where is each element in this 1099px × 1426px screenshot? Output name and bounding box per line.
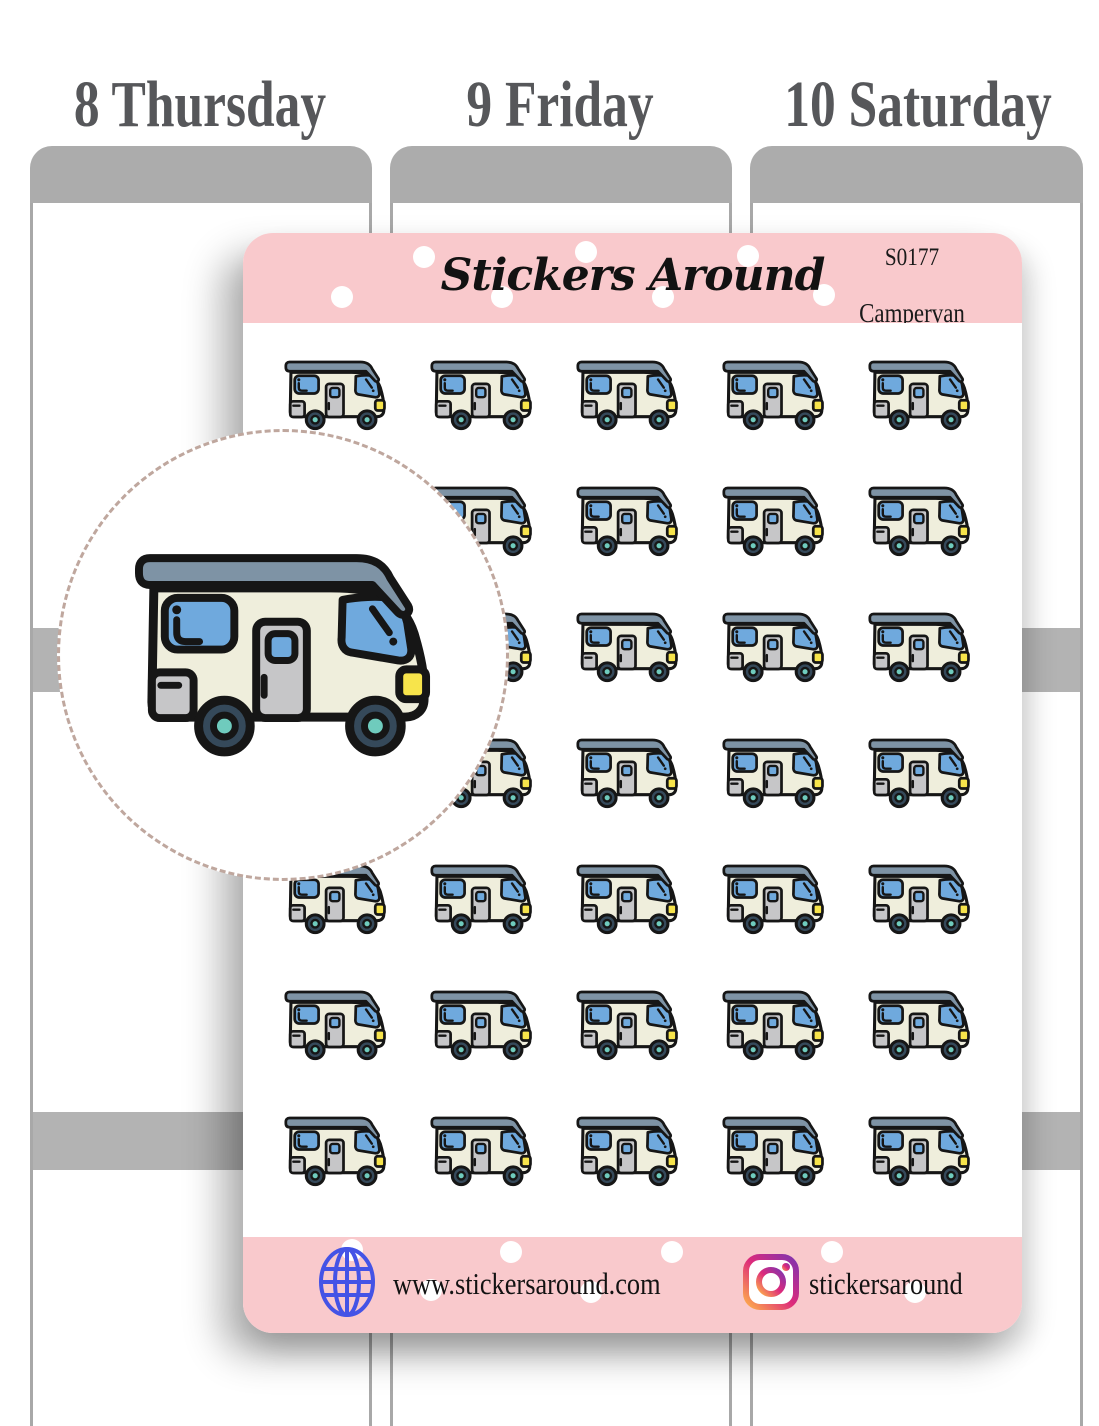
campervan-sticker xyxy=(847,458,993,584)
campervan-sticker xyxy=(701,710,847,836)
product-name: Campervan xyxy=(836,298,989,323)
sheet-footer-band: www.stickersaround.com stickersaround xyxy=(243,1237,1022,1333)
day-header-friday: 9 Friday xyxy=(466,72,653,138)
brand-title: Stickers Around xyxy=(441,247,825,305)
sheet-header-band: Stickers Around S0177 Campervan xyxy=(243,233,1022,323)
day-header-saturday: 10 Saturday xyxy=(784,72,1051,138)
campervan-sticker xyxy=(555,962,701,1088)
campervan-sticker xyxy=(701,1088,847,1214)
campervan-sticker xyxy=(847,584,993,710)
polka-dot xyxy=(500,1241,522,1263)
campervan-sticker xyxy=(555,584,701,710)
campervan-sticker xyxy=(555,1088,701,1214)
campervan-sticker xyxy=(409,836,555,962)
campervan-sticker xyxy=(555,332,701,458)
polka-dot xyxy=(331,286,353,308)
campervan-sticker xyxy=(409,1088,555,1214)
product-code: S0177 xyxy=(836,243,989,273)
campervan-sticker xyxy=(701,962,847,1088)
planner-column-header xyxy=(30,146,372,203)
polka-dot xyxy=(661,1241,683,1263)
campervan-sticker xyxy=(409,962,555,1088)
campervan-sticker xyxy=(263,962,409,1088)
campervan-sticker xyxy=(701,332,847,458)
campervan-sticker xyxy=(847,962,993,1088)
product-label: S0177 Campervan xyxy=(822,243,1002,323)
globe-icon xyxy=(317,1245,377,1319)
product-image: 8 Thursday 9 Friday 10 Saturday Stickers… xyxy=(0,0,1099,1426)
website-url: www.stickersaround.com xyxy=(393,1264,661,1304)
campervan-sticker xyxy=(263,1088,409,1214)
campervan-sticker xyxy=(847,836,993,962)
campervan-sticker xyxy=(701,836,847,962)
day-header-thursday: 8 Thursday xyxy=(74,72,326,138)
campervan-sticker xyxy=(847,332,993,458)
campervan-sticker xyxy=(409,332,555,458)
polka-dot xyxy=(413,246,435,268)
campervan-sticker xyxy=(701,584,847,710)
planner-column-header xyxy=(750,146,1083,203)
campervan-sticker xyxy=(555,710,701,836)
planner-column-header xyxy=(390,146,732,203)
campervan-sticker xyxy=(847,1088,993,1214)
campervan-sticker xyxy=(555,458,701,584)
instagram-handle: stickersaround xyxy=(809,1264,963,1304)
campervan-sticker xyxy=(555,836,701,962)
polka-dot xyxy=(821,1241,843,1263)
campervan-sticker xyxy=(701,458,847,584)
campervan-sticker-enlarged xyxy=(134,552,436,759)
instagram-icon xyxy=(742,1253,800,1311)
campervan-sticker xyxy=(847,710,993,836)
